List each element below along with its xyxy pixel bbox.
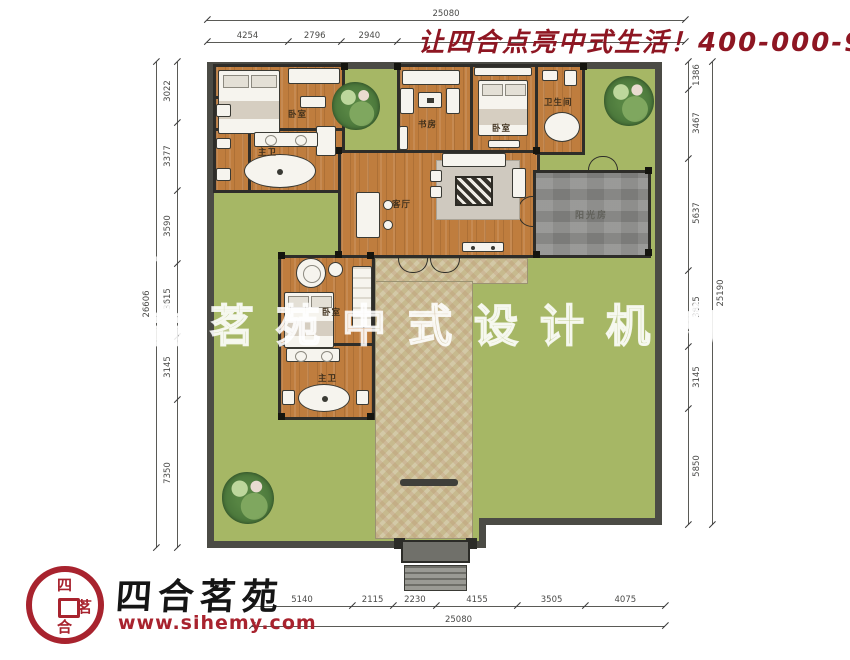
room-label-bedroom-nw: 卧室: [288, 108, 307, 120]
toilet-symbol: [564, 70, 577, 86]
dimension-line: [207, 20, 685, 21]
column-marker: [278, 252, 285, 259]
tree-symbol: [222, 472, 274, 524]
header-slogan: 让四合点亮中式生活！400-000-9075: [418, 22, 850, 59]
vanity-symbol: [254, 132, 318, 147]
pillow: [505, 84, 526, 96]
dimension-value: 7350: [163, 448, 173, 498]
dimension-value: 3145: [692, 352, 702, 402]
room-label-bath-nw: 主卫: [258, 146, 277, 158]
seal-char: 合: [57, 616, 72, 637]
watermark-text: 四合茗苑中式设计机构: [78, 290, 798, 354]
sofa-symbol: [400, 88, 414, 114]
bed-symbol: [218, 70, 280, 134]
armchair-symbol: [512, 168, 526, 198]
handle: [471, 246, 475, 250]
dimension-value: 5140: [277, 595, 327, 605]
pillow: [482, 84, 503, 96]
round-chair-symbol: [296, 258, 326, 288]
brand-seal: 四 茗 合: [26, 566, 104, 644]
gate-steps: [404, 565, 467, 591]
sideboard-symbol: [462, 242, 504, 252]
wardrobe-symbol: [474, 67, 532, 76]
compound-wall-bottom-right: [479, 518, 662, 525]
desk-symbol: [316, 126, 336, 156]
dimension-line: [252, 606, 665, 607]
dimension-value: 3467: [692, 98, 702, 148]
column-marker: [335, 147, 342, 154]
bench-symbol: [488, 140, 520, 148]
column-marker: [278, 413, 285, 420]
armchair-symbol: [430, 170, 442, 182]
column-marker: [341, 63, 348, 70]
dimension-tick: [152, 544, 159, 551]
room-label-bedroom-n: 卧室: [492, 122, 511, 134]
column-marker: [367, 252, 374, 259]
screen-step: [400, 479, 458, 486]
table-top: [427, 98, 434, 103]
room-label-sunroom: 阳光房: [575, 208, 608, 221]
dimension-value: 2796: [290, 31, 340, 41]
drain: [277, 169, 283, 175]
toilet-symbol: [216, 104, 231, 117]
pillow: [251, 75, 277, 88]
interior-wall: [470, 64, 473, 155]
tree-symbol: [332, 82, 380, 130]
dimension-tick: [708, 521, 715, 528]
seal-char: 四: [57, 574, 72, 595]
sofa-symbol: [442, 153, 506, 167]
toilet-symbol: [356, 390, 369, 405]
dimension-value: 5637: [692, 188, 702, 238]
column-marker: [367, 413, 374, 420]
toilet-symbol: [282, 390, 295, 405]
cabinet-symbol: [399, 126, 408, 150]
interior-wall: [535, 64, 538, 155]
dimension-value: 2230: [390, 595, 440, 605]
drain: [322, 396, 328, 402]
coffee-table-symbol: [418, 92, 442, 108]
room-label-bath-w: 主卫: [318, 372, 337, 384]
column-marker: [645, 167, 652, 174]
dimension-value: 4254: [223, 31, 273, 41]
dimension-value: 4155: [452, 595, 502, 605]
stool-symbol: [383, 220, 393, 230]
dimension-value: 25080: [421, 9, 471, 19]
kitchen-island-symbol: [356, 192, 380, 238]
column-marker: [645, 249, 652, 256]
dimension-tick: [173, 544, 180, 551]
column-marker: [533, 251, 540, 258]
column-marker: [533, 147, 540, 154]
tree-symbol: [604, 76, 654, 126]
floorplan-image: 卧室 主卫 书房 卧室 卫生间 客厅 阳光房 卧室 主卫 42542796294…: [0, 0, 850, 660]
bathtub-symbol: [544, 112, 580, 142]
seal-center-box: [58, 598, 80, 618]
dimension-value: 3505: [527, 595, 577, 605]
room-label-bath-ne: 卫生间: [544, 96, 573, 108]
dimension-value: 5850: [692, 441, 702, 491]
brand-website: www.sihemy.com: [118, 612, 317, 634]
basin: [265, 135, 277, 146]
dimension-tick: [661, 622, 668, 629]
room-label-living: 客厅: [392, 198, 411, 210]
dimension-value: 25080: [434, 615, 484, 625]
pillow: [223, 75, 249, 88]
sink-symbol: [216, 138, 231, 149]
room-label-study: 书房: [418, 118, 437, 130]
side-table-symbol: [328, 262, 343, 277]
column-marker: [580, 63, 587, 70]
handle: [491, 246, 495, 250]
basin: [295, 135, 307, 146]
gate-roof: [401, 540, 470, 563]
dimension-value: 3377: [163, 131, 173, 181]
sofa-symbol: [446, 88, 460, 114]
bathtub-symbol: [244, 154, 316, 188]
dresser-symbol: [300, 96, 326, 108]
tea-table-symbol: [455, 176, 493, 206]
dimension-value: 2940: [344, 31, 394, 41]
dimension-tick: [661, 602, 668, 609]
bench-symbol: [288, 68, 340, 84]
dimension-value: 4075: [600, 595, 650, 605]
column-marker: [394, 63, 401, 70]
dimension-value: 3022: [163, 66, 173, 116]
bathtub-symbol: [298, 384, 350, 412]
sink-symbol: [542, 70, 558, 81]
dimension-tick: [684, 521, 691, 528]
armchair-symbol: [430, 186, 442, 198]
column-marker: [335, 251, 342, 258]
toilet-symbol: [216, 168, 231, 181]
chair-cushion: [303, 265, 321, 283]
sofa-symbol: [402, 70, 460, 85]
